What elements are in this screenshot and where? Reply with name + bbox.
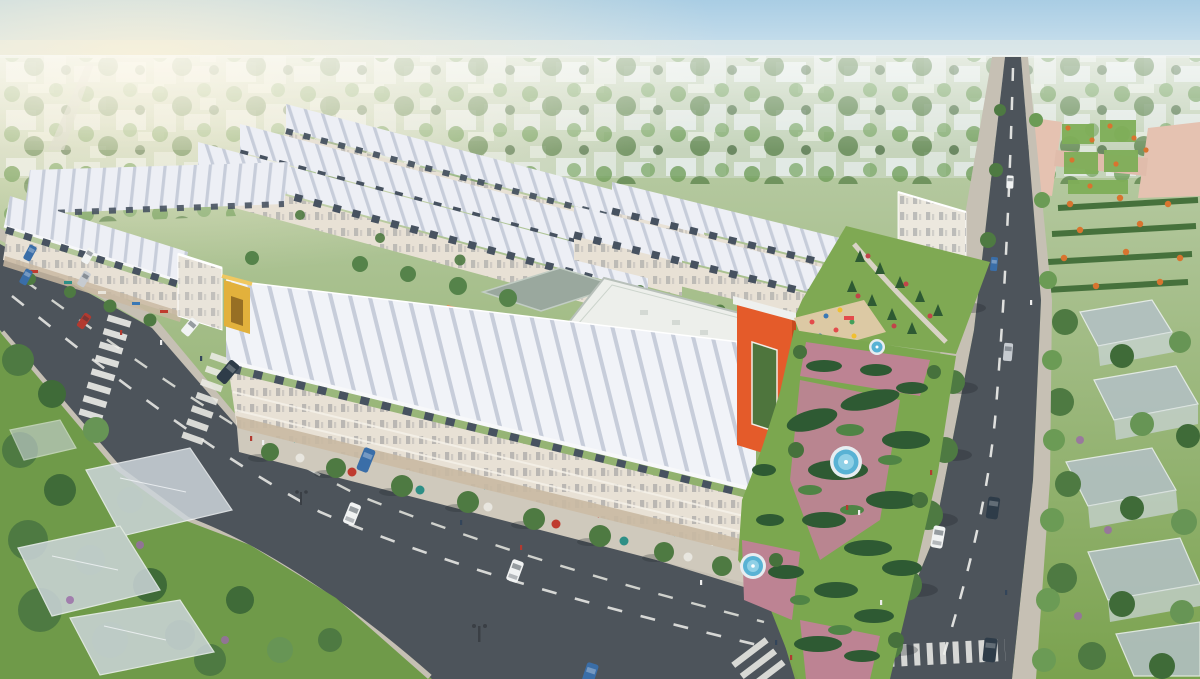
development-aerial-render [0, 0, 1200, 679]
aerial-render-stage [0, 0, 1200, 679]
fountain-small [869, 339, 885, 355]
fountain-lower [740, 553, 766, 579]
fountain-main [830, 446, 862, 478]
entrance-gate [222, 276, 252, 334]
gate-arch [231, 296, 243, 326]
flower-plaza [1026, 118, 1200, 198]
corner-tower [178, 254, 222, 330]
